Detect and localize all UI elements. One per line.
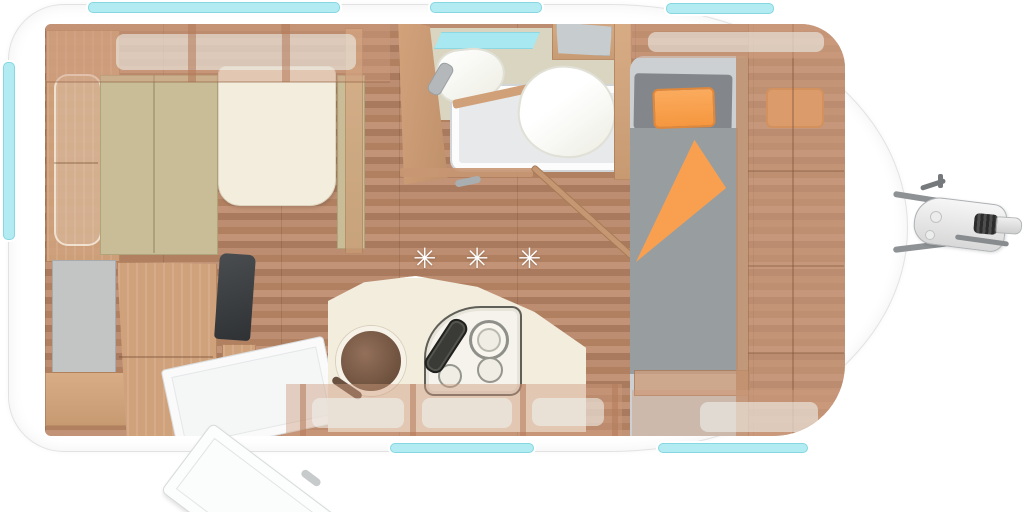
coupling-bolt-2	[925, 230, 935, 240]
bathroom-bottom-wall	[400, 168, 533, 177]
kitchen-drawer-seam	[119, 356, 213, 358]
window-bottom-bedfoot	[658, 443, 808, 453]
overhead-lockers-bed-front	[648, 32, 824, 52]
window-bottom-kitchen	[390, 443, 534, 453]
lower-locker-front-3	[532, 398, 604, 426]
handbrake-grip	[938, 174, 943, 188]
lower-locker-divider-1	[300, 384, 306, 436]
locker-divider-2	[282, 24, 290, 82]
rear-wardrobe-shelf-line	[54, 162, 98, 164]
lower-locker-front-1	[312, 398, 404, 428]
bed2-panel-seam-h3	[748, 352, 844, 354]
tv-screen	[214, 253, 256, 341]
bathroom-door-handle	[455, 175, 482, 187]
stove-burner-small-2	[477, 357, 503, 383]
window-rear-side	[3, 62, 15, 240]
lower-locker-divider-2	[410, 384, 416, 436]
coupling-bolt-1	[930, 211, 942, 223]
rear-wardrobe-door-frame	[54, 74, 102, 246]
bed-divider-board	[736, 56, 748, 436]
kitchen-side-panel	[52, 260, 116, 374]
window-top-rear	[88, 2, 340, 13]
dinette-cushion-seam	[153, 75, 155, 253]
dinette-bench-cushions	[100, 75, 218, 255]
bed2-overhead-panel	[748, 24, 845, 436]
lower-locker-bedfoot-front	[700, 402, 818, 432]
hitch-pin	[995, 216, 1022, 235]
heater-stars-marker: ✳ ✳ ✳	[413, 242, 553, 278]
bed2-panel-seam-v	[792, 24, 794, 436]
window-top-bed	[666, 3, 774, 14]
lower-locker-divider-4	[612, 384, 618, 436]
bed2-panel-seam-h2	[748, 265, 844, 267]
locker-divider-1	[188, 24, 196, 82]
bathroom-mirror	[556, 24, 612, 56]
overhead-lockers-rear-front	[116, 34, 356, 70]
stove-burner-large	[469, 320, 509, 360]
lower-locker-front-2	[422, 398, 512, 428]
bed-pillow-orange	[652, 87, 715, 129]
bed2-panel-seam-h1	[748, 170, 844, 172]
dinette-table	[218, 66, 336, 206]
kitchen-lower-sill	[45, 372, 127, 426]
locker-lip-line	[46, 81, 390, 83]
caravan-floorplan: ✳ ✳ ✳	[0, 0, 1024, 512]
entry-door-handle	[300, 468, 322, 488]
interior-wood-floor: ✳ ✳ ✳	[45, 24, 845, 436]
bathroom-skylight-window	[434, 32, 540, 49]
window-top-bathroom	[430, 2, 542, 13]
lower-locker-divider-3	[520, 384, 526, 436]
